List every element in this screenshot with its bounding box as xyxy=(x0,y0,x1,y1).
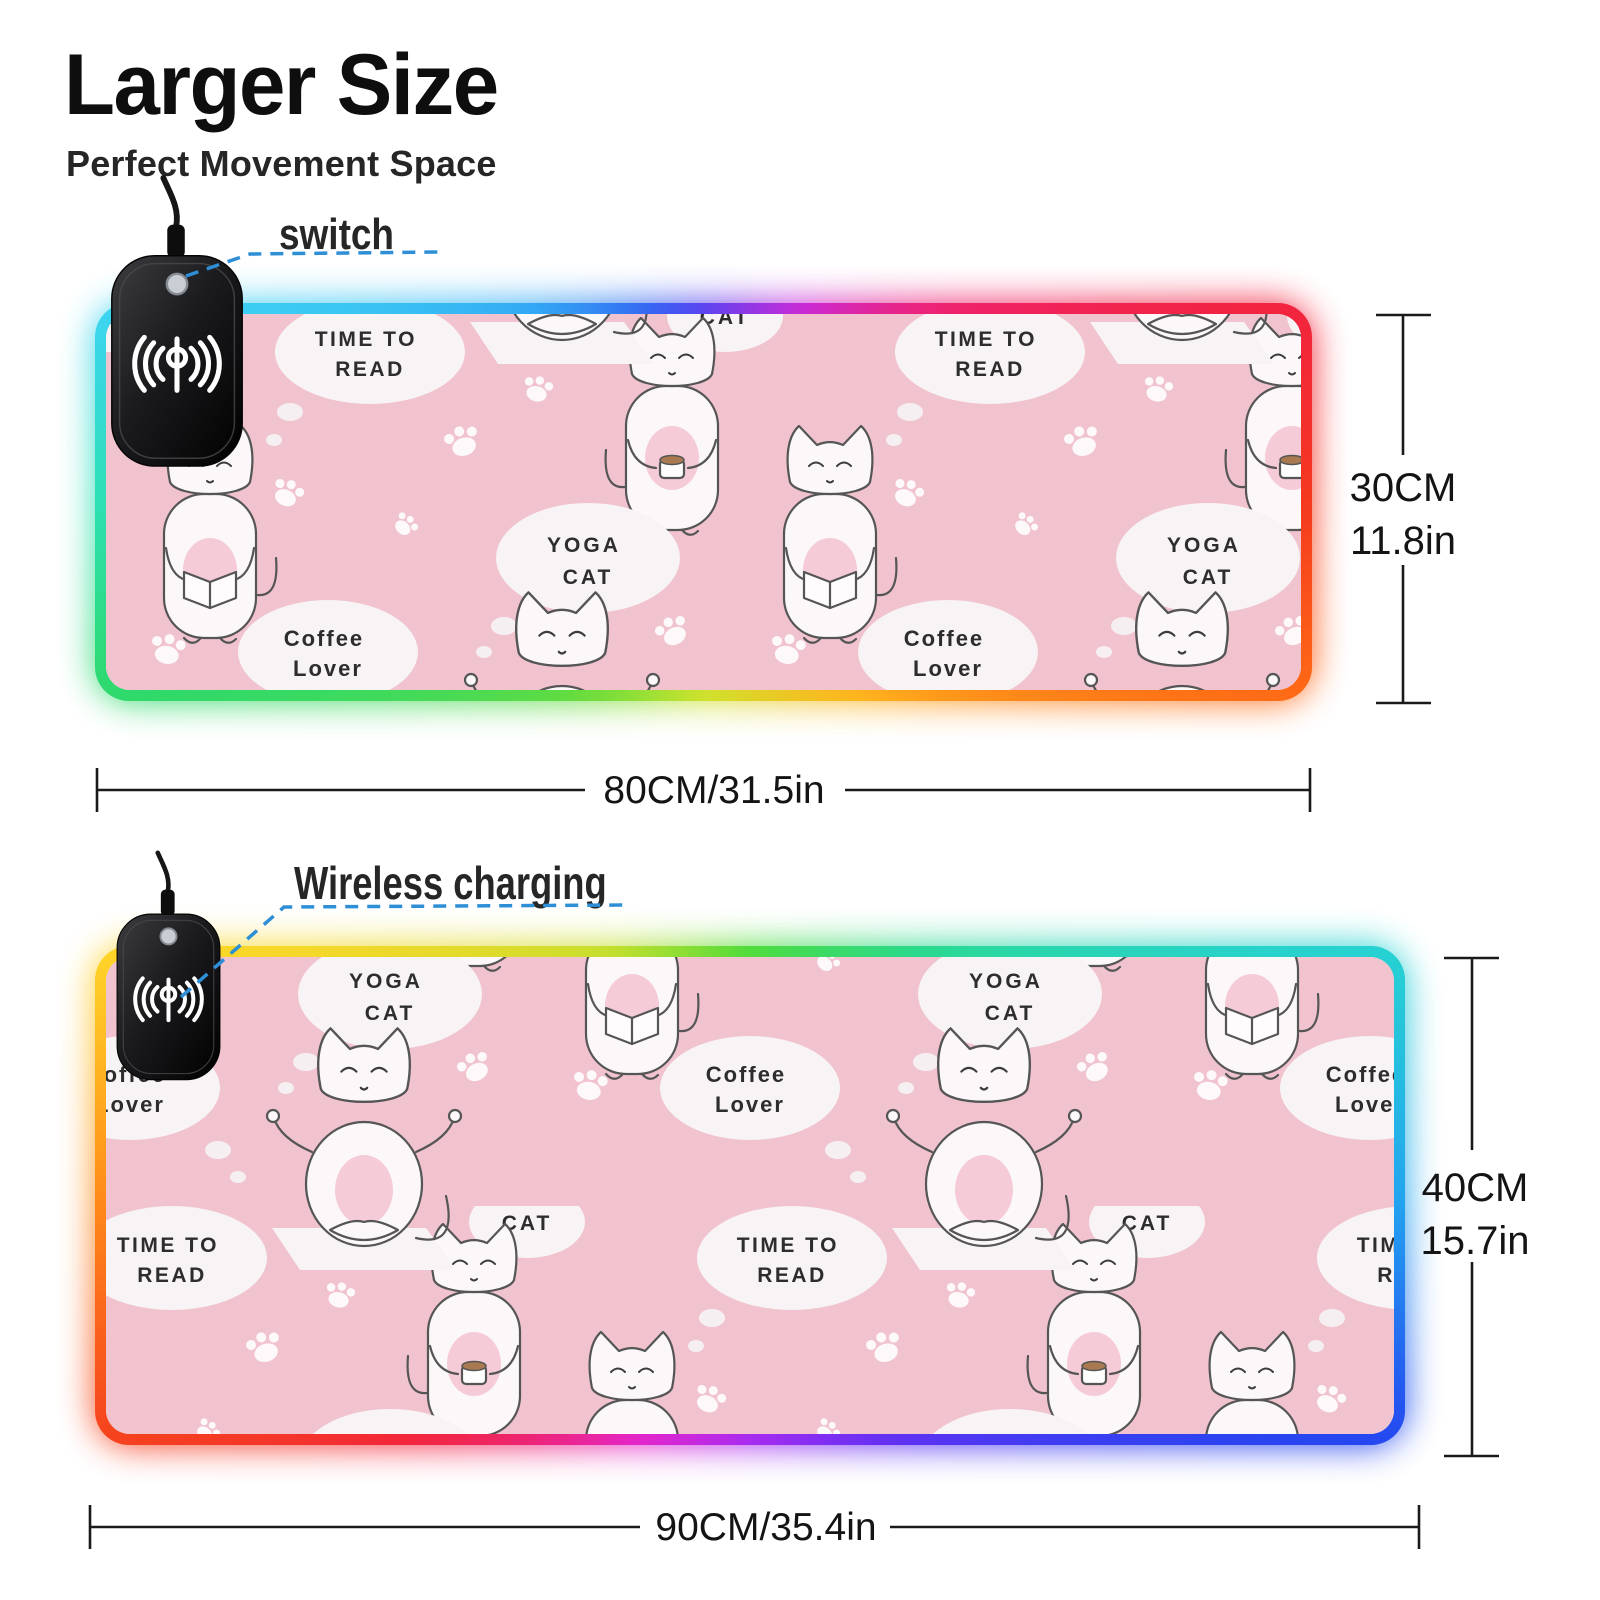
mousepad-small-rgb-frame xyxy=(95,303,1312,701)
small-pad-width-label: 80CM/31.5in xyxy=(603,771,824,810)
large-pad-height-label: 40CM 15.7in xyxy=(1421,1162,1530,1268)
small-pad-height-cm: 30CM xyxy=(1350,462,1457,515)
wireless-charging-callout-label: Wireless charging xyxy=(294,856,607,910)
large-pad-width-label: 90CM/35.4in xyxy=(655,1508,876,1547)
mousepad-large-surface xyxy=(106,957,1394,1434)
product-infographic: TIME TO READ YOGA CAT Coffee Lover xyxy=(0,0,1600,1600)
small-pad-height-in: 11.8in xyxy=(1350,515,1457,568)
mousepad-small-surface xyxy=(106,314,1301,690)
small-pad-height-label: 30CM 11.8in xyxy=(1350,462,1457,568)
page-title: Larger Size xyxy=(64,36,498,135)
wireless-charger-large-pad xyxy=(111,815,226,1116)
large-pad-height-in: 15.7in xyxy=(1421,1215,1530,1268)
mousepad-large-rgb-frame xyxy=(95,946,1405,1445)
mousepad-small-pattern xyxy=(106,314,1301,690)
mousepad-large-pattern xyxy=(106,957,1394,1434)
switch-callout-label: switch xyxy=(279,210,394,260)
wireless-charger-small-pad xyxy=(104,161,250,481)
large-pad-height-cm: 40CM xyxy=(1421,1162,1530,1215)
